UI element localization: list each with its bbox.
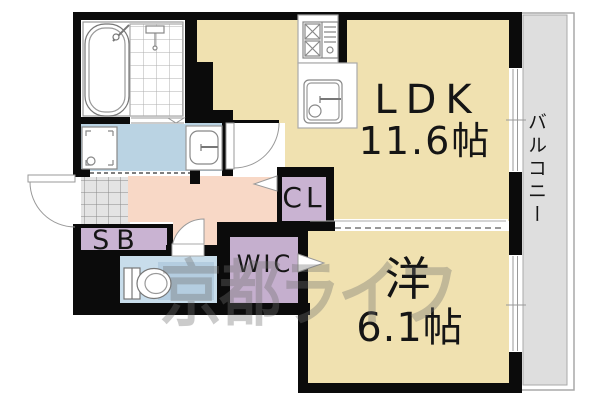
shower-area	[130, 24, 183, 116]
walk-in-closet-label: WIC	[230, 252, 300, 276]
wall-shaft-bottom-left	[73, 252, 120, 307]
wall-right-mid	[509, 172, 522, 255]
shoe-box-label: SB	[84, 227, 150, 254]
entrance-door-leaf	[28, 175, 75, 182]
washing-machine-drain	[87, 157, 95, 165]
wall-closet-top	[277, 167, 332, 177]
western-room-label: 洋	[340, 256, 475, 302]
bathroom-door	[130, 117, 185, 124]
balcony-label: バルコニー	[526, 112, 545, 272]
western-window-opening	[509, 255, 522, 352]
toilet-icon	[124, 268, 171, 299]
closet-label: CL	[281, 184, 327, 212]
wall-right-upper	[509, 12, 522, 70]
shower-head-icon	[153, 46, 157, 50]
wall-wic-left	[217, 222, 230, 315]
shower-faucet-icon	[146, 26, 164, 33]
kitchen-sink-icon	[304, 80, 342, 123]
wall-right-lower	[509, 352, 522, 393]
kitchen-sink-outer	[304, 80, 342, 123]
shower-tile	[130, 24, 183, 116]
bathtub-icon	[85, 24, 129, 116]
wall-washroom-stub-left	[81, 169, 90, 177]
wall-bottom-right	[298, 383, 522, 393]
entrance-door	[28, 175, 81, 227]
toilet-door-leaf	[172, 244, 204, 256]
bathtub-knob-icon	[113, 34, 119, 40]
entrance-door-opening	[71, 177, 81, 224]
ldk-room-label: LDK	[340, 80, 515, 120]
washbasin-icon	[186, 126, 222, 170]
western-room-size: 6.1帖	[325, 308, 495, 348]
toilet-bowl	[137, 269, 171, 299]
wall-ldk-door-lintel	[233, 120, 279, 123]
hallway-floor	[128, 176, 277, 222]
washing-machine-icon	[82, 127, 117, 169]
entry-tile-floor	[81, 177, 130, 228]
ldk-door-leaf	[226, 123, 234, 169]
entrance-door-swing-arc	[30, 182, 75, 227]
wall-bathroom-bottom	[81, 117, 130, 124]
ldk-room-size: 11.6帖	[335, 122, 515, 160]
bathtub-outer	[85, 24, 129, 116]
ldk-floor-lower	[334, 177, 510, 221]
wall-washroom-stub-right	[190, 169, 200, 184]
stove-icon	[303, 22, 338, 58]
floor-plan: LDK 11.6帖 洋 6.1帖 CL WIC SB バルコニー 京都ライフ	[0, 0, 600, 400]
wall-kitchen-shaft	[185, 62, 213, 117]
